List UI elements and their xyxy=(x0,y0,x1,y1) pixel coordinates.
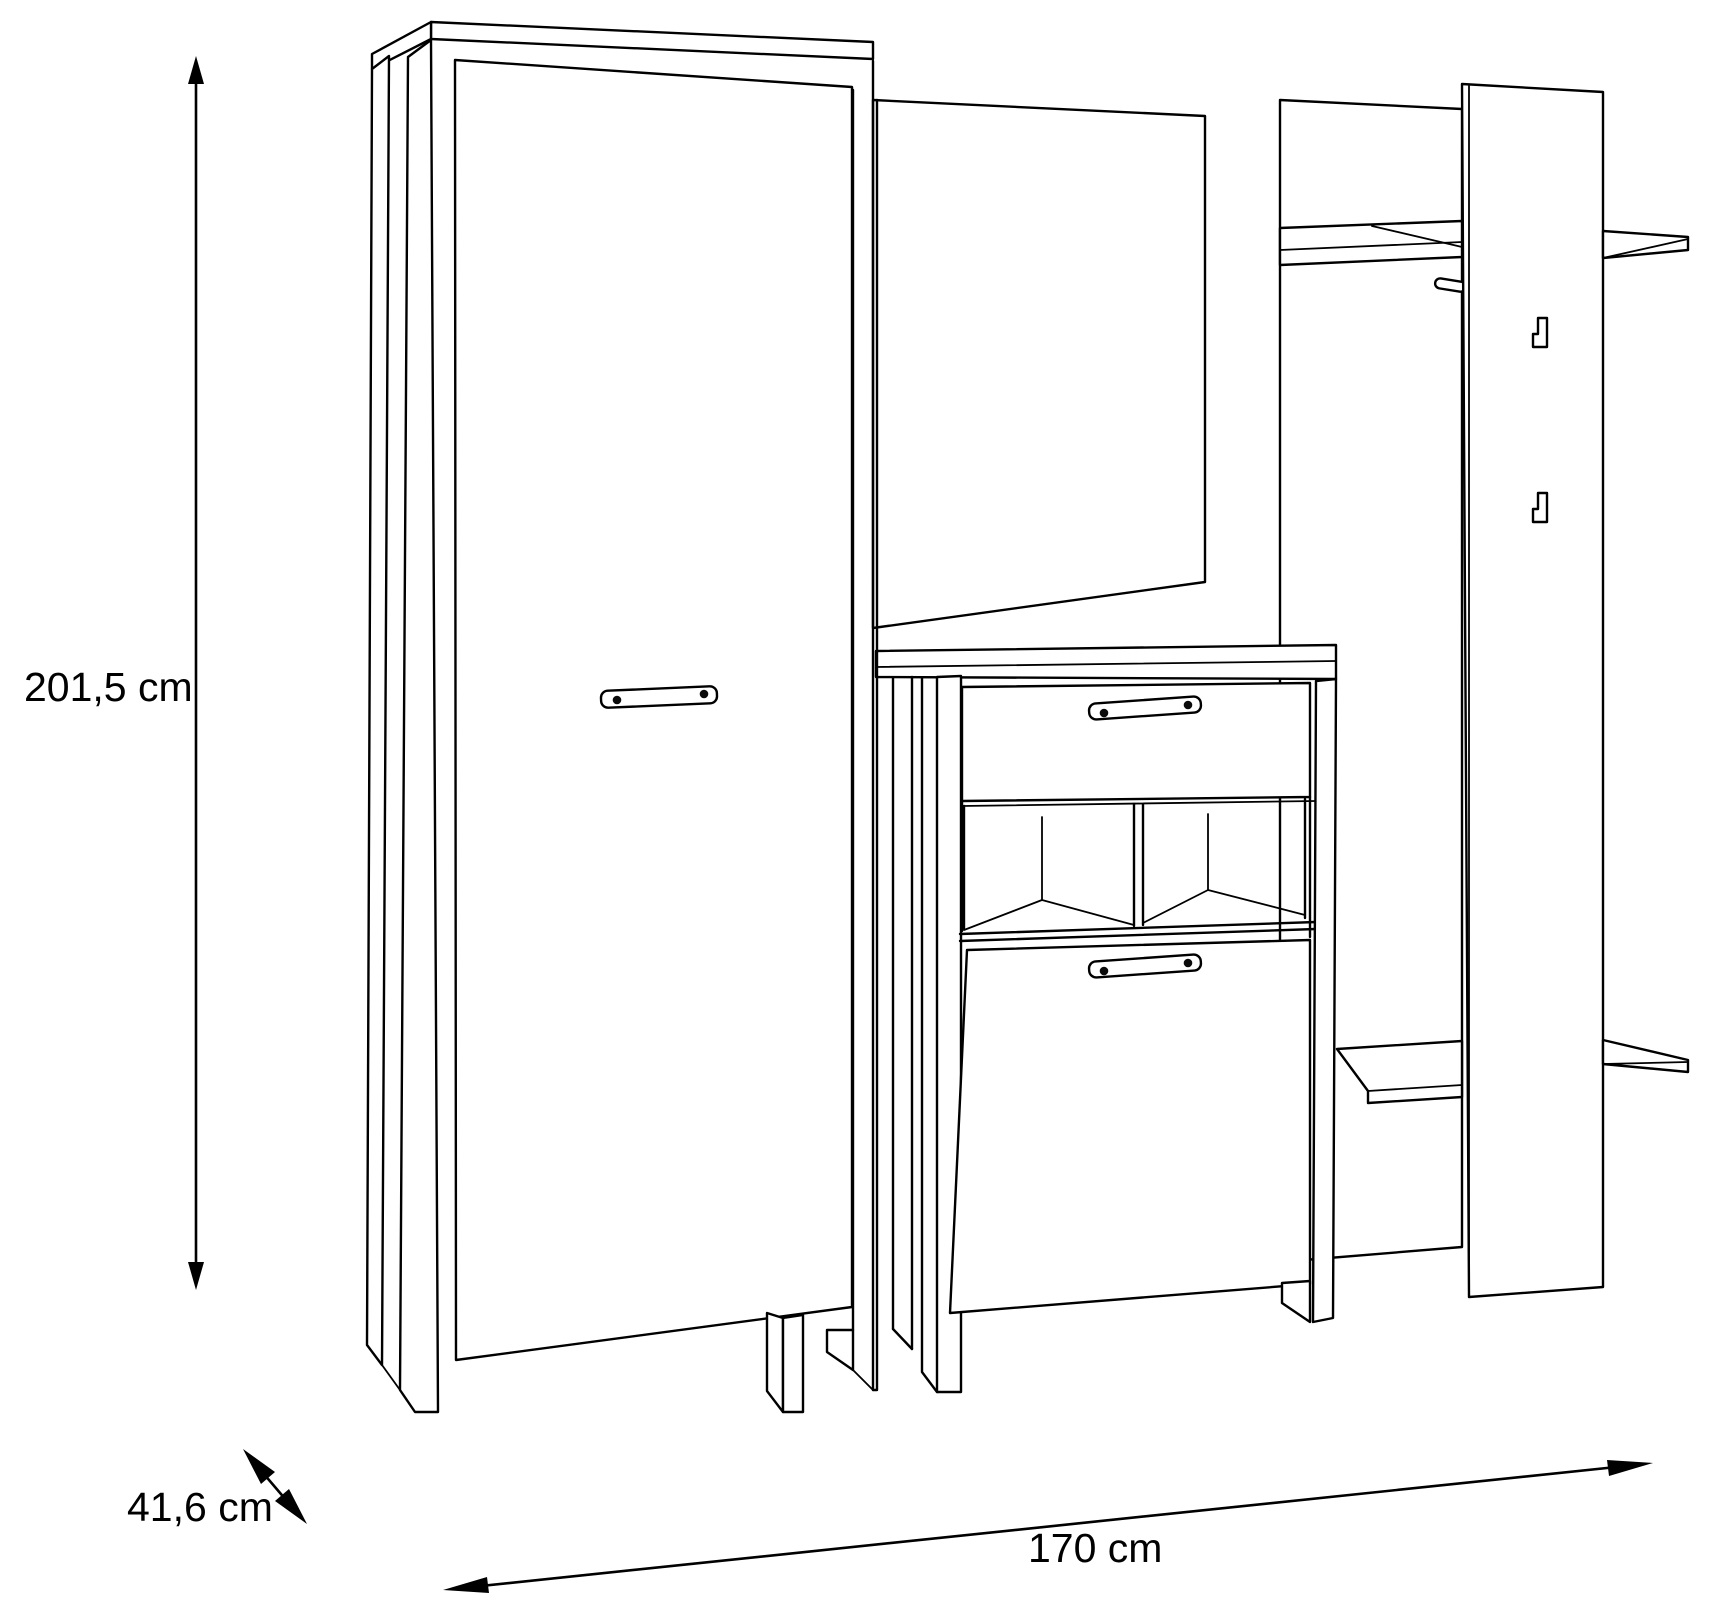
tall-cabinet-door xyxy=(455,60,852,1360)
bottom-shelf-right-end xyxy=(1603,1040,1688,1072)
height-label: 201,5 cm xyxy=(24,664,193,710)
arrow-right-icon xyxy=(1607,1460,1653,1476)
flap-front xyxy=(950,940,1310,1313)
tall-cabinet-left-legs xyxy=(367,40,438,1412)
diagram-canvas: 201,5 cm 41,6 cm 170 cm xyxy=(0,0,1713,1623)
tall-cabinet-top-board xyxy=(372,22,873,69)
arrow-left-icon xyxy=(443,1577,489,1593)
furniture-line-drawing: 201,5 cm 41,6 cm 170 cm xyxy=(0,0,1713,1623)
coat-rack-top-shelf xyxy=(1280,221,1462,265)
shoe-cabinet xyxy=(876,645,1336,1392)
tall-cabinet-front-right-leg xyxy=(767,1313,803,1412)
arrow-upleft-icon xyxy=(243,1449,275,1484)
open-compartments xyxy=(960,797,1316,941)
width-dimension: 170 cm xyxy=(443,1460,1653,1593)
width-label: 170 cm xyxy=(1028,1525,1162,1571)
door-front xyxy=(455,60,852,1360)
arrow-down-icon xyxy=(188,1262,204,1290)
coat-panel-board xyxy=(1462,84,1603,1297)
arrow-up-icon xyxy=(188,56,204,84)
tall-cabinet xyxy=(367,22,877,1412)
height-dimension: 201,5 cm xyxy=(24,56,204,1290)
shoe-cabinet-top-board xyxy=(876,645,1336,679)
depth-dimension: 41,6 cm xyxy=(127,1449,307,1530)
shoe-cabinet-drawer xyxy=(962,683,1310,801)
mirror-outline xyxy=(873,100,1205,628)
depth-label: 41,6 cm xyxy=(127,1484,273,1530)
shoe-cabinet-flap-door xyxy=(950,940,1310,1313)
mirror-panel xyxy=(873,100,1205,628)
coat-panel xyxy=(1462,84,1603,1297)
coat-rack xyxy=(1280,84,1688,1297)
top-shelf-right-end xyxy=(1603,231,1688,258)
